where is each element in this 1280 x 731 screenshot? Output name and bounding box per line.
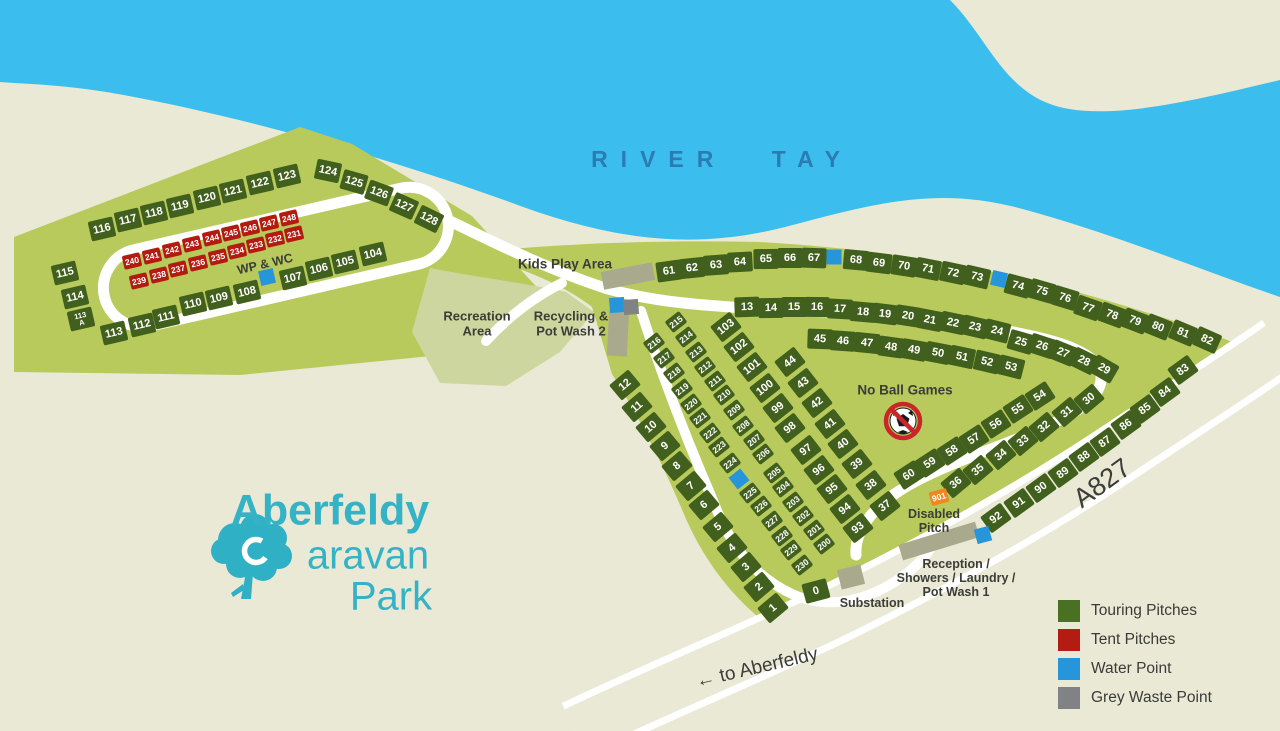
pitch-0: 0 xyxy=(801,578,830,604)
legend-label: Water Point xyxy=(1091,660,1171,678)
legend-label: Tent Pitches xyxy=(1091,631,1175,649)
pitch-123: 123 xyxy=(273,163,302,188)
pitch-115: 115 xyxy=(51,260,80,285)
pitch-240: 240 xyxy=(122,252,143,270)
legend-label: Touring Pitches xyxy=(1091,602,1197,620)
pitch-125: 125 xyxy=(339,169,369,195)
pitch-116: 116 xyxy=(88,216,117,241)
pitch-62: 62 xyxy=(679,257,706,280)
pitch-119: 119 xyxy=(166,193,195,218)
label-substation: Substation xyxy=(840,596,905,610)
pitch-104: 104 xyxy=(359,241,388,266)
pitch-242: 242 xyxy=(162,241,183,259)
pitch-234: 234 xyxy=(227,242,248,260)
caravan-park-map: 1161171181191201211221231241251261271281… xyxy=(0,0,1280,731)
touring-pitch-swatch xyxy=(1058,600,1080,622)
logo-caravan-text: aravan xyxy=(307,534,429,579)
pitch-73: 73 xyxy=(963,264,992,289)
pitch-126: 126 xyxy=(364,179,394,206)
pitch-239: 239 xyxy=(129,272,150,290)
pitch-241: 241 xyxy=(142,247,163,265)
pitch-238: 238 xyxy=(149,266,170,284)
label-to-aberfeldy: ← to Aberfeldy xyxy=(694,644,820,693)
pitch-233: 233 xyxy=(246,236,267,254)
pitch-121: 121 xyxy=(219,178,248,203)
pitch-65: 65 xyxy=(753,249,778,269)
tent-pitch-swatch xyxy=(1058,629,1080,651)
pitch-111: 111 xyxy=(152,304,181,329)
pitch-64: 64 xyxy=(727,251,753,272)
pitch-113: 113 xyxy=(100,320,129,345)
waste-point xyxy=(623,299,639,315)
pitch-124: 124 xyxy=(314,159,343,184)
pitch-66: 66 xyxy=(778,248,803,268)
label-kids-play-area: Kids Play Area xyxy=(518,256,612,271)
label-reception: Reception / Showers / Laundry / Pot Wash… xyxy=(897,557,1016,599)
pitch-105: 105 xyxy=(331,249,360,274)
legend-label: Grey Waste Point xyxy=(1091,689,1212,707)
pitch-16: 16 xyxy=(804,297,829,317)
legend-item-waste: Grey Waste Point xyxy=(1058,687,1212,709)
pitch-51: 51 xyxy=(948,345,977,370)
pitch-118: 118 xyxy=(140,200,169,225)
pitch-231: 231 xyxy=(284,225,305,243)
pitch-236: 236 xyxy=(188,254,209,272)
legend-item-tent: Tent Pitches xyxy=(1058,629,1212,651)
pitch-63: 63 xyxy=(703,254,729,276)
pitch-67: 67 xyxy=(801,248,827,269)
pitch-107: 107 xyxy=(279,265,308,290)
pitch-15: 15 xyxy=(782,297,807,317)
pitch-114: 114 xyxy=(61,284,90,309)
water-point-swatch xyxy=(1058,658,1080,680)
logo-aberfeldy-text: Aberfeldy xyxy=(231,487,429,536)
pitch-109: 109 xyxy=(205,285,234,310)
pitch-108: 108 xyxy=(233,279,262,304)
pitch-245: 245 xyxy=(221,224,242,242)
grey-waste-swatch xyxy=(1058,687,1080,709)
pitch-230: 230 xyxy=(791,554,814,576)
pitch-247: 247 xyxy=(259,214,280,232)
pitch-113A: 113 A xyxy=(67,306,96,331)
label-recycling: Recycling & Pot Wash 2 xyxy=(534,309,608,338)
pitch-117: 117 xyxy=(114,207,143,232)
pitch-106: 106 xyxy=(305,256,334,281)
legend-item-water: Water Point xyxy=(1058,658,1212,680)
logo-park-text: Park xyxy=(350,575,432,620)
pitch-248: 248 xyxy=(279,209,300,227)
pitch-53: 53 xyxy=(996,354,1025,379)
pitch-128: 128 xyxy=(413,205,444,234)
pitch-127: 127 xyxy=(389,192,420,220)
pitch-232: 232 xyxy=(265,230,286,248)
pitch-24: 24 xyxy=(982,318,1011,343)
pitch-244: 244 xyxy=(202,229,223,247)
pitch-243: 243 xyxy=(182,235,203,253)
label-disabled-pitch: Disabled Pitch xyxy=(908,507,960,535)
label-river-tay: RIVER TAY xyxy=(591,147,853,173)
pitch-246: 246 xyxy=(240,219,261,237)
pitch-45: 45 xyxy=(807,329,833,350)
pitch-71: 71 xyxy=(914,257,942,281)
pitch-237: 237 xyxy=(168,260,189,278)
pitch-110: 110 xyxy=(179,291,208,316)
pitch-120: 120 xyxy=(193,185,222,210)
pitch-122: 122 xyxy=(246,170,275,195)
pitch-13: 13 xyxy=(734,297,760,318)
pitch-47: 47 xyxy=(854,332,881,355)
label-no-ball-games: No Ball Games xyxy=(857,382,952,397)
label-recreation-area: Recreation Area xyxy=(443,309,510,338)
pitch-14: 14 xyxy=(758,298,783,318)
map-legend: Touring Pitches Tent Pitches Water Point… xyxy=(1058,600,1212,709)
pitch-46: 46 xyxy=(830,330,856,352)
pitch-69: 69 xyxy=(865,252,892,275)
legend-item-touring: Touring Pitches xyxy=(1058,600,1212,622)
pitch-235: 235 xyxy=(208,248,229,266)
pitch-901: 901 xyxy=(928,488,949,506)
water-point xyxy=(827,250,842,265)
